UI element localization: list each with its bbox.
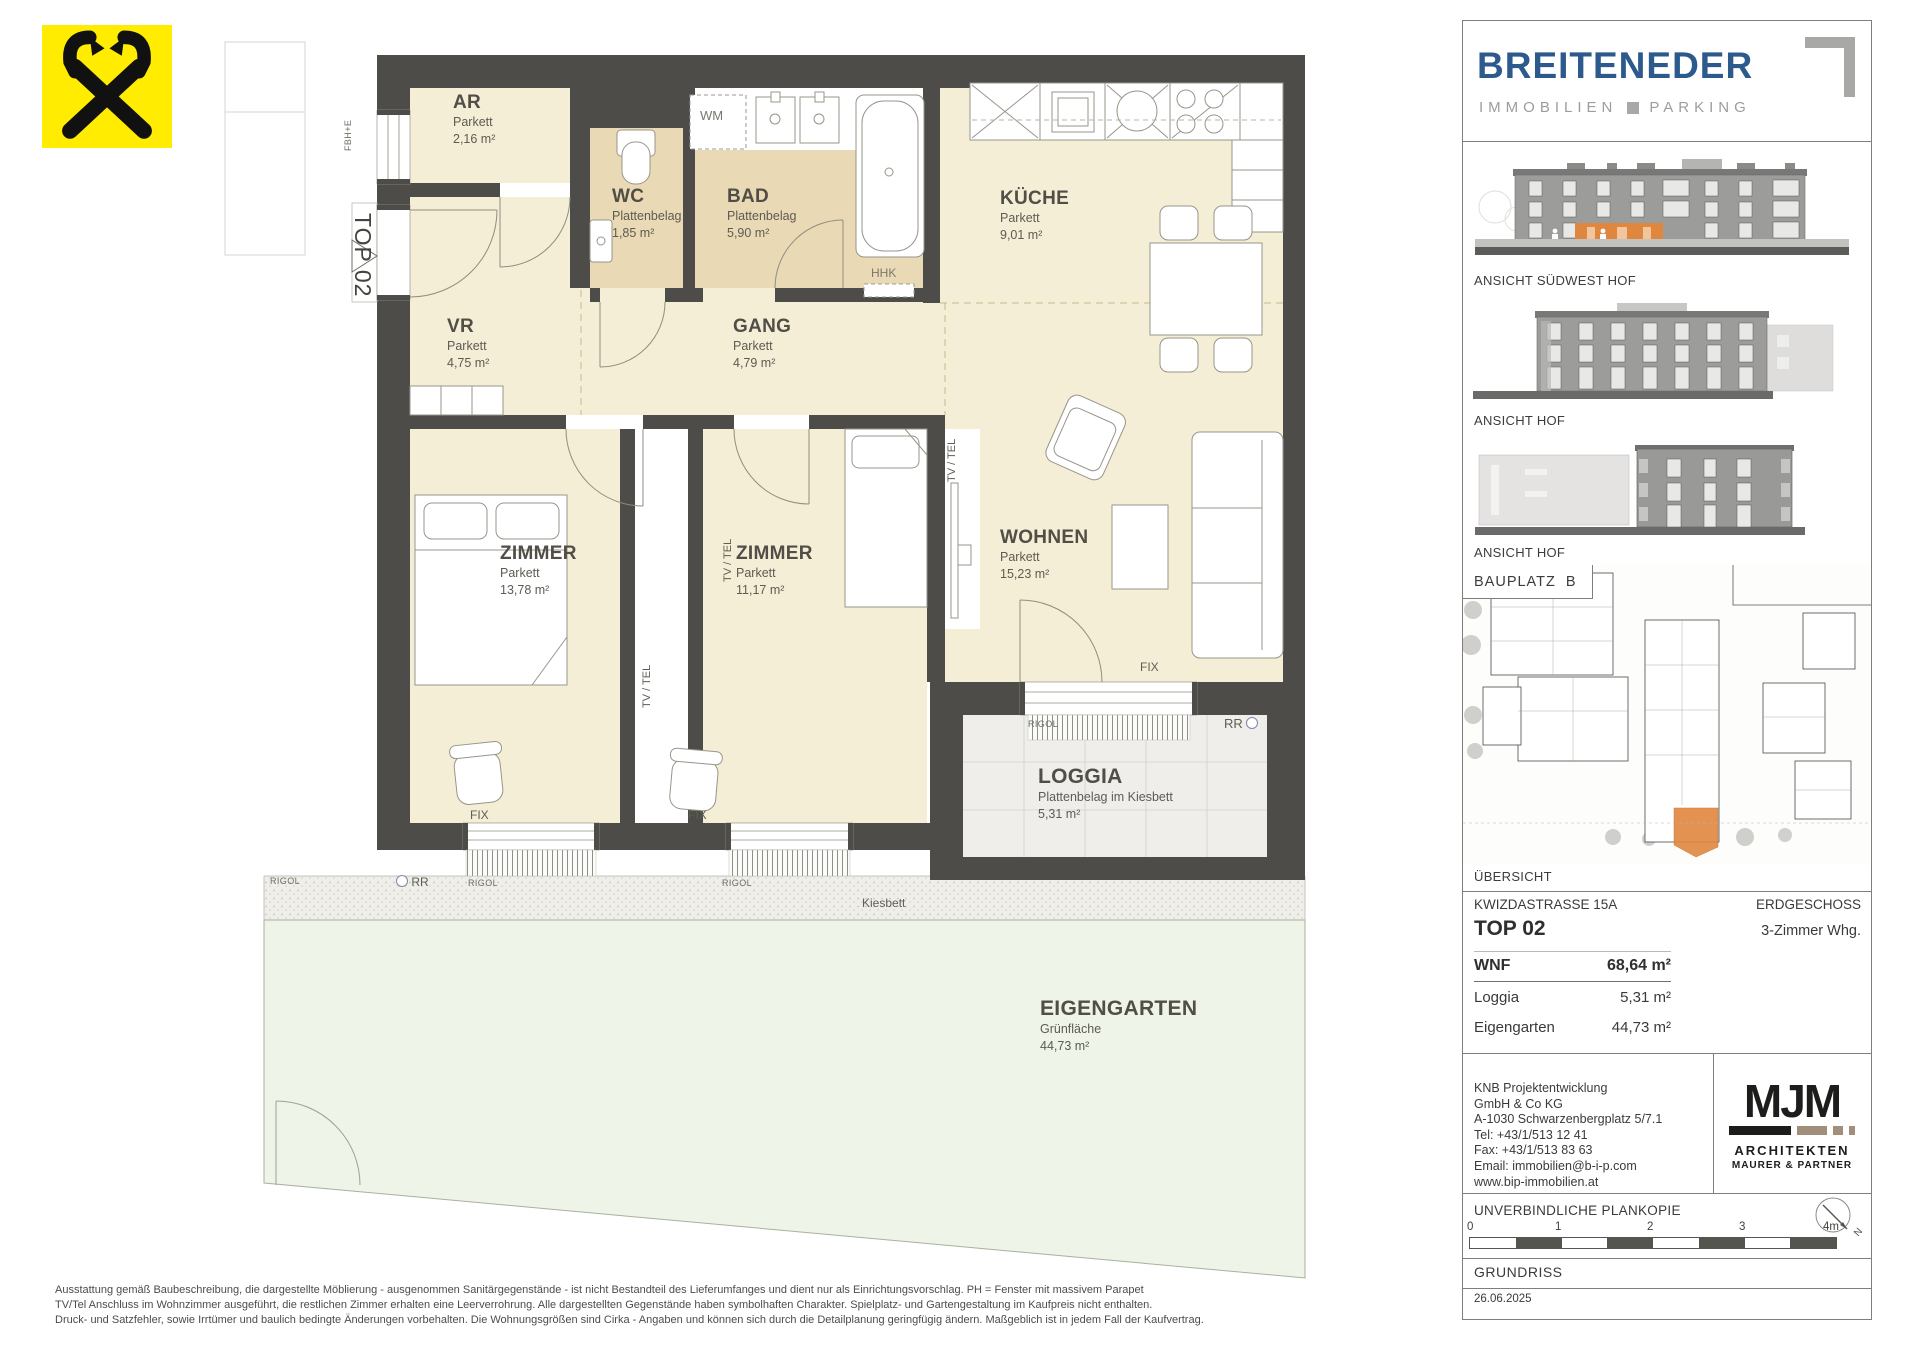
disclaimer-line: Ausstattung gemäß Baubeschreibung, die d…	[55, 1283, 1525, 1298]
square-icon	[1627, 102, 1639, 114]
contact-line: A-1030 Schwarzenbergplatz 5/7.1	[1474, 1112, 1662, 1128]
room-label-eigengarten: EIGENGARTEN Grünfläche 44,73 m²	[1040, 997, 1197, 1054]
scale-tick: 2	[1647, 1221, 1653, 1233]
tagline-parking: PARKING	[1649, 99, 1750, 116]
area-row-value: 68,64 m²	[1553, 957, 1671, 975]
room-name: VR	[447, 316, 489, 338]
unit-type: 3-Zimmer Whg.	[1761, 923, 1861, 939]
tv-tel-label: TV / TEL	[722, 539, 734, 582]
scale-tick: 1	[1555, 1221, 1561, 1233]
desk-chair-icon	[666, 748, 723, 812]
unit-label: TOP 02	[349, 213, 376, 297]
chair-icon	[1214, 206, 1252, 240]
room-floor: Grünfläche	[1040, 1021, 1197, 1038]
room-name: GANG	[733, 316, 791, 338]
architect-logo-bars-icon	[1713, 1126, 1871, 1135]
gable-cross-icon	[42, 25, 172, 148]
washing-machine-label: WM	[700, 108, 723, 123]
room-area: 15,23 m²	[1000, 566, 1088, 583]
room-area: 4,79 m²	[733, 355, 791, 372]
architect-line1: ARCHITEKTEN	[1713, 1143, 1871, 1158]
fix-label: FIX	[470, 808, 489, 822]
room-area: 5,31 m²	[1038, 806, 1173, 823]
room-area: 44,73 m²	[1040, 1038, 1197, 1055]
unit-number: TOP 02	[1474, 917, 1546, 941]
architect-logo: MJM ARCHITEKTEN MAURER & PARTNER	[1713, 1077, 1871, 1171]
room-name: ZIMMER	[500, 543, 577, 565]
room-area: 2,16 m²	[453, 131, 495, 148]
contact-line: Email: immobilien@b-i-p.com	[1474, 1159, 1662, 1175]
room-name: LOGGIA	[1038, 765, 1173, 789]
scale-tick: 3	[1739, 1221, 1745, 1233]
scale-bar-icon	[1469, 1237, 1837, 1249]
contact-line: www.bip-immobilien.at	[1474, 1175, 1662, 1191]
room-label-loggia: LOGGIA Plattenbelag im Kiesbett 5,31 m²	[1038, 765, 1173, 822]
rigol-label: RIGOL	[270, 876, 300, 886]
area-row-value: 44,73 m²	[1553, 1019, 1671, 1036]
floor-label: ERDGESCHOSS	[1756, 897, 1861, 912]
rr-circle-icon	[396, 875, 408, 887]
room-area: 9,01 m²	[1000, 227, 1069, 244]
cooktop-icon	[1177, 90, 1195, 108]
plankopie-label: UNVERBINDLICHE PLANKOPIE	[1474, 1203, 1681, 1218]
contact-line: Fax: +43/1/513 83 63	[1474, 1143, 1662, 1159]
room-label-vr: VR Parkett 4,75 m²	[447, 316, 489, 371]
title-block-panel: BREITENEDER IMMOBILIEN PARKING	[1462, 20, 1872, 1320]
rigol-label: RIGOL	[722, 878, 752, 888]
room-name: ZIMMER	[736, 543, 813, 565]
architect-wordmark: MJM	[1713, 1077, 1871, 1125]
rr-marker: RR	[396, 875, 429, 889]
rr-label: RR	[411, 875, 428, 889]
room-area: 4,75 m²	[447, 355, 489, 372]
heater-label: HHK	[871, 266, 896, 280]
room-name: WC	[612, 186, 682, 208]
tagline-immobilien: IMMOBILIEN	[1479, 99, 1617, 116]
room-floor: Parkett	[447, 338, 489, 355]
developer-contact-block: KNB Projektentwicklung GmbH & Co KG A-10…	[1474, 1081, 1662, 1190]
area-row-value: 5,31 m²	[1553, 989, 1671, 1006]
rr-label: RR	[1224, 716, 1243, 731]
side-table-icon	[1112, 505, 1168, 589]
siteplan-label: BAUPLATZ B	[1463, 565, 1593, 599]
elevation-caption: ANSICHT HOF	[1474, 413, 1565, 428]
sink-icon	[1117, 91, 1157, 131]
closet-icon	[410, 386, 503, 415]
kiesbett-label: Kiesbett	[862, 896, 905, 910]
disclaimer-line: TV/Tel Anschluss im Wohnzimmer ausgeführ…	[55, 1298, 1525, 1313]
dining-table-icon	[1150, 243, 1262, 335]
room-label-zimmer-2: ZIMMER Parkett 11,17 m²	[736, 543, 813, 598]
rigol-label: RIGOL	[1028, 719, 1058, 729]
rigol-label: RIGOL	[468, 878, 498, 888]
desk-chair-icon	[449, 741, 507, 806]
room-name: EIGENGARTEN	[1040, 997, 1197, 1021]
room-label-zimmer-1: ZIMMER Parkett 13,78 m²	[500, 543, 577, 598]
tv-tel-label: TV / TEL	[641, 665, 653, 708]
room-floor: Plattenbelag im Kiesbett	[1038, 789, 1173, 806]
street-label: KWIZDASTRASSE 15A	[1474, 897, 1617, 912]
rr-marker: RR	[1224, 716, 1258, 731]
scale-tick: 4m	[1823, 1221, 1839, 1233]
room-area: 13,78 m²	[500, 582, 577, 599]
rr-circle-icon	[1246, 717, 1258, 729]
room-floor: Parkett	[736, 565, 813, 582]
area-row-label: Loggia	[1474, 989, 1519, 1006]
room-label-gang: GANG Parkett 4,79 m²	[733, 316, 791, 371]
room-label-ar: AR Parkett 2,16 m²	[453, 92, 495, 147]
room-label-wohnen: WOHNEN Parkett 15,23 m²	[1000, 527, 1088, 582]
fix-label: FIX	[688, 808, 707, 822]
brand-tagline: IMMOBILIEN PARKING	[1479, 99, 1751, 116]
drawing-title: GRUNDRISS	[1474, 1264, 1563, 1280]
architect-line2: MAURER & PARTNER	[1713, 1160, 1871, 1171]
contact-line: KNB Projektentwicklung	[1474, 1081, 1662, 1097]
garden-area	[264, 920, 1305, 1278]
room-area: 11,17 m²	[736, 582, 813, 599]
chair-icon	[1160, 206, 1198, 240]
elevation-hof-drawing	[1467, 295, 1867, 409]
room-floor: Parkett	[1000, 549, 1088, 566]
chair-icon	[1160, 338, 1198, 372]
raiffeisen-logo	[42, 25, 172, 148]
sofa-icon	[1192, 432, 1283, 658]
room-floor: Parkett	[500, 565, 577, 582]
room-name: KÜCHE	[1000, 188, 1069, 210]
elevation-caption: ANSICHT SÜDWEST HOF	[1474, 273, 1636, 288]
scale-tick: 0	[1467, 1221, 1473, 1233]
window-type-label: FBH+E	[343, 120, 353, 151]
area-row-label: Eigengarten	[1474, 1019, 1555, 1036]
room-floor: Parkett	[1000, 210, 1069, 227]
north-arrow-icon	[1809, 1193, 1859, 1243]
room-area: 5,90 m²	[727, 225, 797, 242]
room-name: BAD	[727, 186, 797, 208]
room-label-kueche: KÜCHE Parkett 9,01 m²	[1000, 188, 1069, 243]
tv-icon	[951, 483, 958, 618]
siteplan-caption: ÜBERSICHT	[1474, 869, 1552, 884]
brand-wordmark: BREITENEDER	[1477, 45, 1753, 87]
tv-tel-label: TV / TEL	[946, 439, 958, 482]
disclaimer-line: Druck- und Satzfehler, sowie Irrtümer un…	[55, 1313, 1525, 1328]
corner-bracket-icon	[1844, 37, 1855, 97]
heater-icon	[864, 284, 914, 297]
room-area: 1,85 m²	[612, 225, 682, 242]
chair-icon	[1214, 338, 1252, 372]
room-label-bad: BAD Plattenbelag 5,90 m²	[727, 186, 797, 241]
disclaimer-block: Ausstattung gemäß Baubeschreibung, die d…	[55, 1283, 1525, 1329]
room-floor: Parkett	[453, 114, 495, 131]
room-name: WOHNEN	[1000, 527, 1088, 549]
contact-line: GmbH & Co KG	[1474, 1097, 1662, 1113]
area-row-label: WNF	[1474, 957, 1510, 975]
siteplan-drawing	[1463, 565, 1871, 865]
room-floor: Plattenbelag	[612, 208, 682, 225]
elevation-suedwest-drawing	[1467, 147, 1867, 271]
room-label-wc: WC Plattenbelag 1,85 m²	[612, 186, 682, 241]
room-floor: Plattenbelag	[727, 208, 797, 225]
elevation-hof2-drawing	[1467, 435, 1867, 541]
contact-line: Tel: +43/1/513 12 41	[1474, 1128, 1662, 1144]
room-name: AR	[453, 92, 495, 114]
elevation-caption: ANSICHT HOF	[1474, 545, 1565, 560]
room-floor: Parkett	[733, 338, 791, 355]
plan-sheet: TOP 02 FBH+E AR Parkett 2,16 m² WC Platt…	[0, 0, 1920, 1357]
fix-label: FIX	[1140, 660, 1159, 674]
neighbor-outline	[225, 42, 305, 255]
